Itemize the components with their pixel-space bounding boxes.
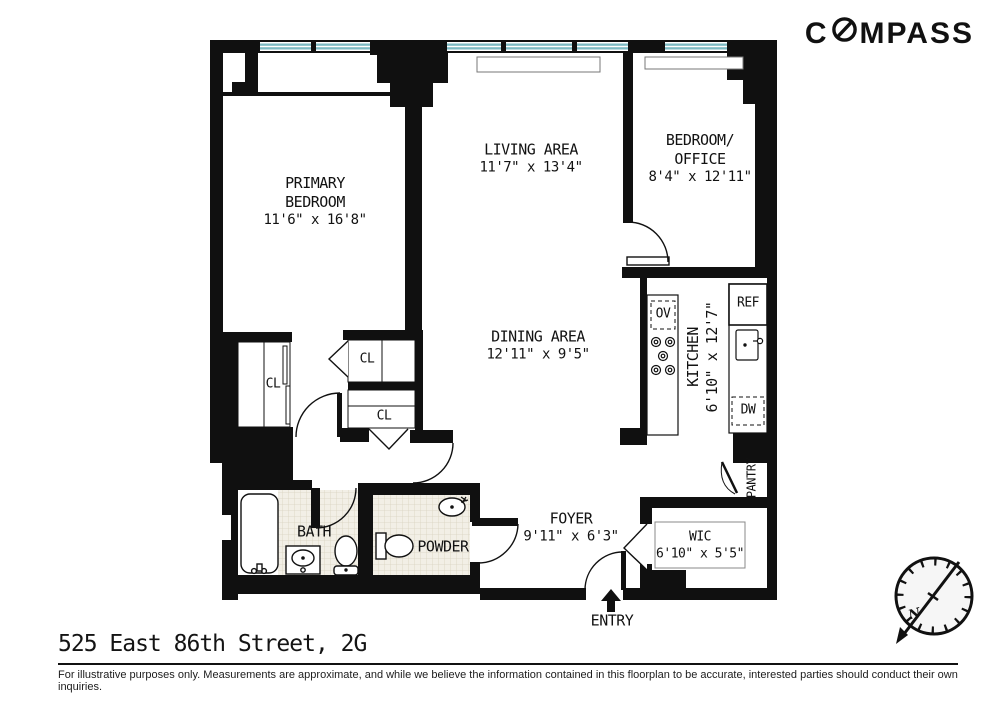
closet-bifold-lower xyxy=(369,429,408,449)
label-entry: ENTRY xyxy=(591,611,634,630)
footer-divider xyxy=(58,663,958,665)
entry-arrow xyxy=(601,589,621,612)
label-powder: POWDER xyxy=(417,537,468,556)
bedroom-office-dims: 8'4" x 12'11" xyxy=(648,169,751,187)
window-living-area xyxy=(447,40,628,53)
refrigerator-label: REF xyxy=(737,296,759,313)
dishwasher-label: DW xyxy=(741,403,756,420)
label-wic: WIC 6'10" x 5'5" xyxy=(656,529,744,562)
living-area-name: LIVING AREA xyxy=(479,140,582,159)
kitchen-dims: 6'10" x 12'7" xyxy=(703,302,722,413)
primary-bedroom-name1: PRIMARY xyxy=(263,174,366,193)
foyer-name: FOYER xyxy=(523,509,618,528)
bedroom-office-name2: OFFICE xyxy=(648,150,751,169)
compass-rose: N xyxy=(896,558,972,644)
closet-bifold-upper xyxy=(329,341,348,377)
label-oven: OV xyxy=(656,307,671,324)
label-foyer: FOYER 9'11" x 6'3" xyxy=(523,509,618,546)
foyer-door xyxy=(413,443,453,483)
entry-door xyxy=(585,551,626,590)
wic-bifold-door xyxy=(624,524,647,570)
label-dishwasher: DW xyxy=(741,403,756,420)
living-area-dims: 11'7" x 13'4" xyxy=(479,160,582,178)
logo-compass-o-icon xyxy=(831,16,858,51)
bath-toilet xyxy=(334,536,358,575)
label-pantry: PANTRY xyxy=(744,458,759,498)
kitchen-name: KITCHEN xyxy=(684,302,703,413)
label-closet-hall-upper: CL xyxy=(360,352,375,369)
label-closet-left: CL xyxy=(266,377,281,394)
closet-hall-lower-name: CL xyxy=(377,409,392,426)
window-bedroom-office xyxy=(665,40,727,53)
logo-letter-c: C xyxy=(805,17,829,51)
label-dining-area: DINING AREA 12'11" x 9'5" xyxy=(486,327,589,364)
label-bedroom-office: BEDROOM/ OFFICE 8'4" x 12'11" xyxy=(648,131,751,187)
floorplan-page: N C MPASS PRIMARY BEDROOM 11'6" x 16'8" … xyxy=(0,0,1000,707)
label-bath: BATH xyxy=(297,522,331,541)
wall-notch xyxy=(222,515,231,540)
foyer-dims: 9'11" x 6'3" xyxy=(523,529,618,547)
bedroom-office-name1: BEDROOM/ xyxy=(648,131,751,150)
dining-area-name: DINING AREA xyxy=(486,327,589,346)
compass-logo: C MPASS xyxy=(805,16,974,51)
powder-door xyxy=(472,518,518,563)
bedroom-office-door xyxy=(627,222,669,265)
wic-name: WIC xyxy=(656,529,744,546)
oven-label: OV xyxy=(656,307,671,324)
label-primary-bedroom: PRIMARY BEDROOM 11'6" x 16'8" xyxy=(263,174,366,230)
powder-name: POWDER xyxy=(417,537,468,556)
dining-area-dims: 12'11" x 9'5" xyxy=(486,347,589,365)
pantry-name: PANTRY xyxy=(744,458,759,498)
window-primary-bedroom xyxy=(260,40,370,53)
window-sills xyxy=(477,57,743,72)
label-closet-hall-lower: CL xyxy=(377,409,392,426)
bath-name: BATH xyxy=(297,522,331,541)
powder-toilet xyxy=(376,533,413,559)
closet-left-name: CL xyxy=(266,377,281,394)
pantry-door xyxy=(721,462,737,494)
bathtub xyxy=(241,494,278,573)
hall-door xyxy=(296,393,342,437)
label-living-area: LIVING AREA 11'7" x 13'4" xyxy=(479,140,582,177)
label-kitchen: KITCHEN 6'10" x 12'7" xyxy=(684,302,722,413)
wic-dims: 6'10" x 5'5" xyxy=(656,546,744,563)
primary-bedroom-dims: 11'6" x 16'8" xyxy=(263,212,366,230)
disclaimer-text: For illustrative purposes only. Measurem… xyxy=(58,669,968,693)
bath-sink xyxy=(286,546,320,574)
closet-hall-upper-name: CL xyxy=(360,352,375,369)
logo-letters-mpass: MPASS xyxy=(860,17,974,51)
entry-label: ENTRY xyxy=(591,611,634,630)
property-address: 525 East 86th Street, 2G xyxy=(58,631,366,657)
primary-bedroom-name2: BEDROOM xyxy=(263,193,366,212)
label-refrigerator: REF xyxy=(737,296,759,313)
